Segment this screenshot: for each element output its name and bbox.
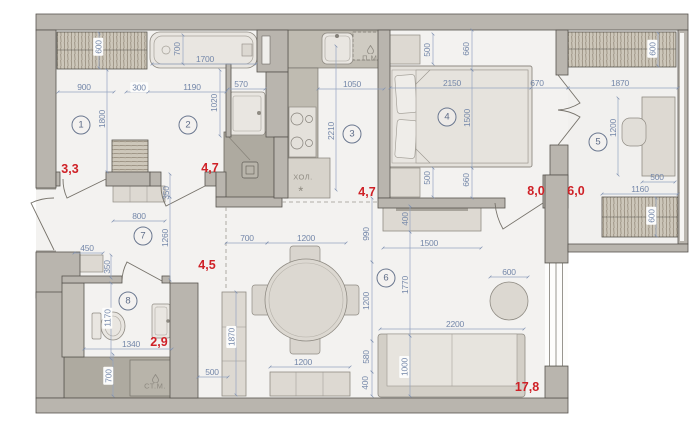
dim-wc-width: 1340 [122, 340, 140, 349]
fridge-label: ХОЛ. [293, 173, 313, 181]
area-label-room7: 4,5 [198, 259, 215, 272]
area-label-room5: 6,0 [567, 185, 584, 198]
dim-sofa-gap: 580 [362, 350, 371, 364]
dim-r1-wardrobe-depth: 600 [93, 38, 103, 56]
dim-bed-length: 2150 [443, 79, 461, 88]
area-label-room2: 4,7 [201, 162, 218, 175]
dim-basin-width: 570 [234, 80, 248, 89]
area-label-room1: 3,3 [61, 163, 78, 176]
room-number-8: 8 [119, 292, 138, 311]
dim-r2-width: 1190 [183, 83, 200, 92]
area-label-room4: 8,0 [527, 185, 544, 198]
snowflake-icon: * [298, 185, 304, 198]
dim-r2-height: 1020 [210, 94, 219, 112]
floor-plan: 900 300 1190 1700 570 1050 2150 670 1870… [0, 0, 695, 429]
dim-balcony-wardrobe-top: 600 [647, 40, 657, 58]
dim-wet-zone-depth: 700 [103, 367, 113, 385]
dim-living-1770: 1770 [401, 276, 410, 294]
dim-table-length: 1200 [297, 234, 315, 243]
dim-balcony-width: 1870 [611, 79, 629, 88]
room-number-7: 7 [134, 227, 153, 246]
dim-pouf-diameter: 600 [502, 268, 516, 277]
dim-nightstand-top: 500 [423, 43, 432, 57]
dim-niche-width: 300 [130, 82, 148, 92]
area-label-room8: 2,9 [150, 336, 167, 349]
dim-table-width: 1200 [362, 292, 371, 310]
dim-r1-width: 900 [77, 83, 91, 92]
dim-balcony-wardrobe-bottom: 600 [646, 207, 656, 225]
dim-living-990: 990 [362, 227, 371, 241]
dim-passage-width: 500 [205, 368, 219, 377]
labels-layer: 900 300 1190 1700 570 1050 2150 670 1870… [0, 0, 695, 429]
dim-desk-depth: 500 [650, 173, 664, 182]
washing-machine-label: СТ.М. [144, 382, 166, 390]
dim-tv-length: 1500 [420, 239, 438, 248]
dim-desk-length: 1200 [609, 119, 618, 137]
room-number-2: 2 [179, 116, 198, 135]
dim-tub-length: 1700 [196, 55, 214, 64]
dim-sideboard-length: 1200 [294, 358, 312, 367]
dim-bed-to-wall: 670 [530, 79, 544, 88]
dim-tub-width: 700 [173, 42, 182, 56]
dim-kitchen-depth: 2210 [327, 122, 336, 140]
dim-bed-width: 1500 [463, 109, 472, 127]
dim-table-offset: 700 [240, 234, 254, 243]
dim-bed-gap-top: 660 [462, 42, 471, 56]
dim-hall-cabinet-depth: 350 [103, 260, 112, 274]
dim-bench-length: 800 [132, 212, 146, 221]
dim-kitchen-width: 1050 [343, 80, 361, 89]
dim-sideboard-depth: 400 [361, 376, 370, 390]
dim-tv-depth: 400 [401, 212, 410, 226]
dim-bed-gap-bottom: 660 [462, 173, 471, 187]
dim-r1-height: 1800 [98, 110, 107, 128]
dim-sofa-length: 2200 [446, 320, 464, 329]
room-number-5: 5 [589, 133, 608, 152]
area-label-room3: 4,7 [358, 186, 375, 199]
dim-hall-length: 1260 [161, 229, 170, 247]
dim-nightstand-bottom: 500 [423, 171, 432, 185]
room-number-1: 1 [72, 116, 91, 135]
area-label-room6: 17,8 [515, 381, 539, 394]
dim-wc-depth: 1170 [102, 307, 112, 328]
room-number-6: 6 [377, 269, 396, 288]
dim-sofa-depth: 1000 [399, 356, 409, 378]
dim-bench-depth: 350 [162, 186, 171, 200]
dim-balcony-inner-width: 1160 [631, 185, 648, 194]
room-number-4: 4 [438, 108, 457, 127]
room-number-3: 3 [343, 125, 362, 144]
dim-cabinet-length: 1870 [226, 326, 236, 348]
dim-hall-cabinet: 450 [80, 244, 94, 253]
dishwasher-label: П.М. [362, 54, 380, 62]
